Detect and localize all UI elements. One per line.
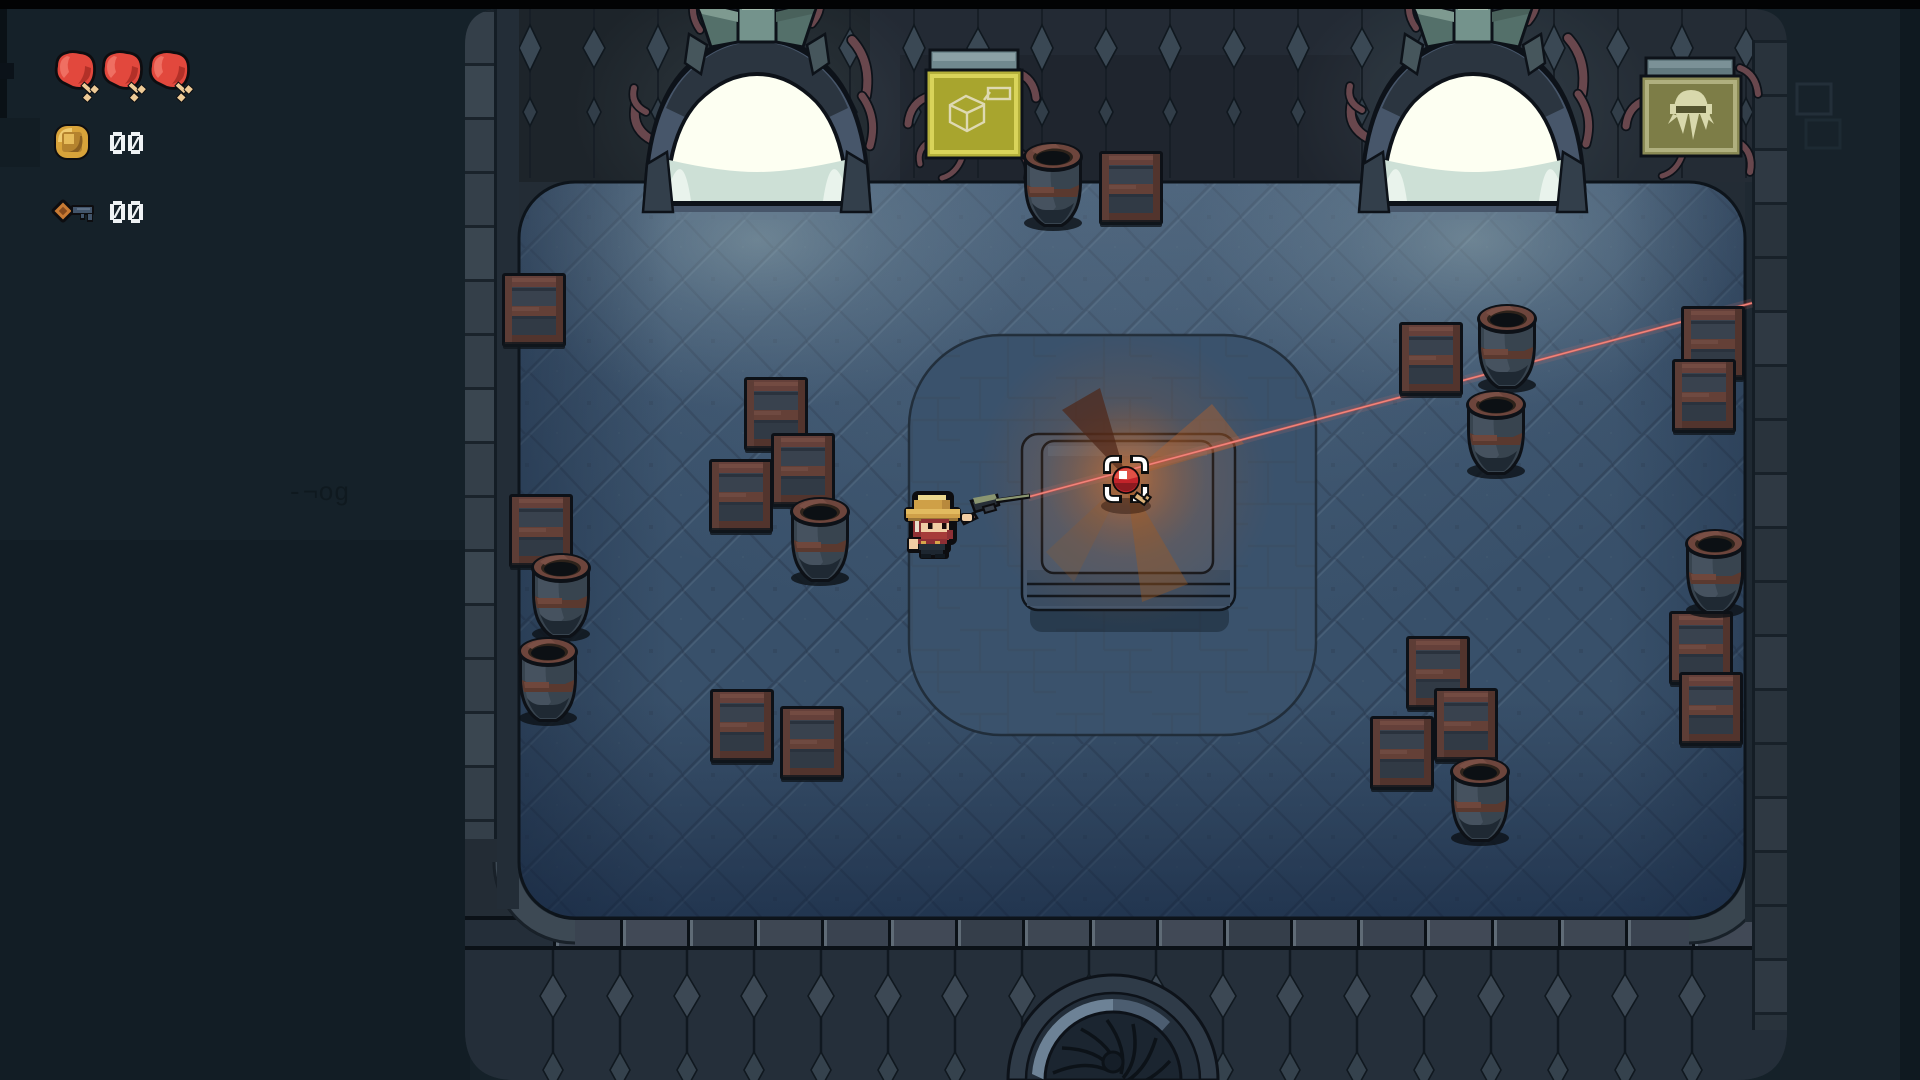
svg-text:-¬oɡ: -¬oɡ <box>287 478 349 508</box>
